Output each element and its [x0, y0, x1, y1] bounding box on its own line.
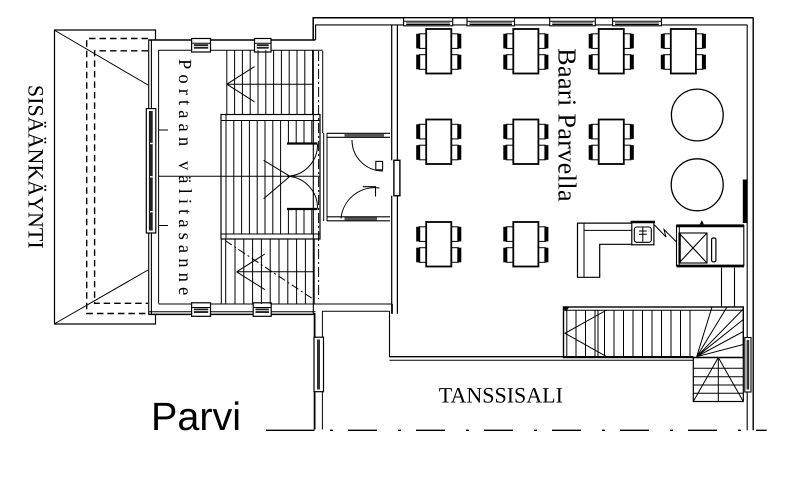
svg-text:Parvi: Parvi — [151, 395, 241, 439]
svg-text:TANSSISALI: TANSSISALI — [439, 383, 563, 408]
svg-text:Portaan välitasanne: Portaan välitasanne — [174, 59, 194, 300]
svg-text:Baari Parvella: Baari Parvella — [553, 48, 582, 202]
svg-text:SISÄÄNKÄYNTI: SISÄÄNKÄYNTI — [24, 85, 49, 249]
